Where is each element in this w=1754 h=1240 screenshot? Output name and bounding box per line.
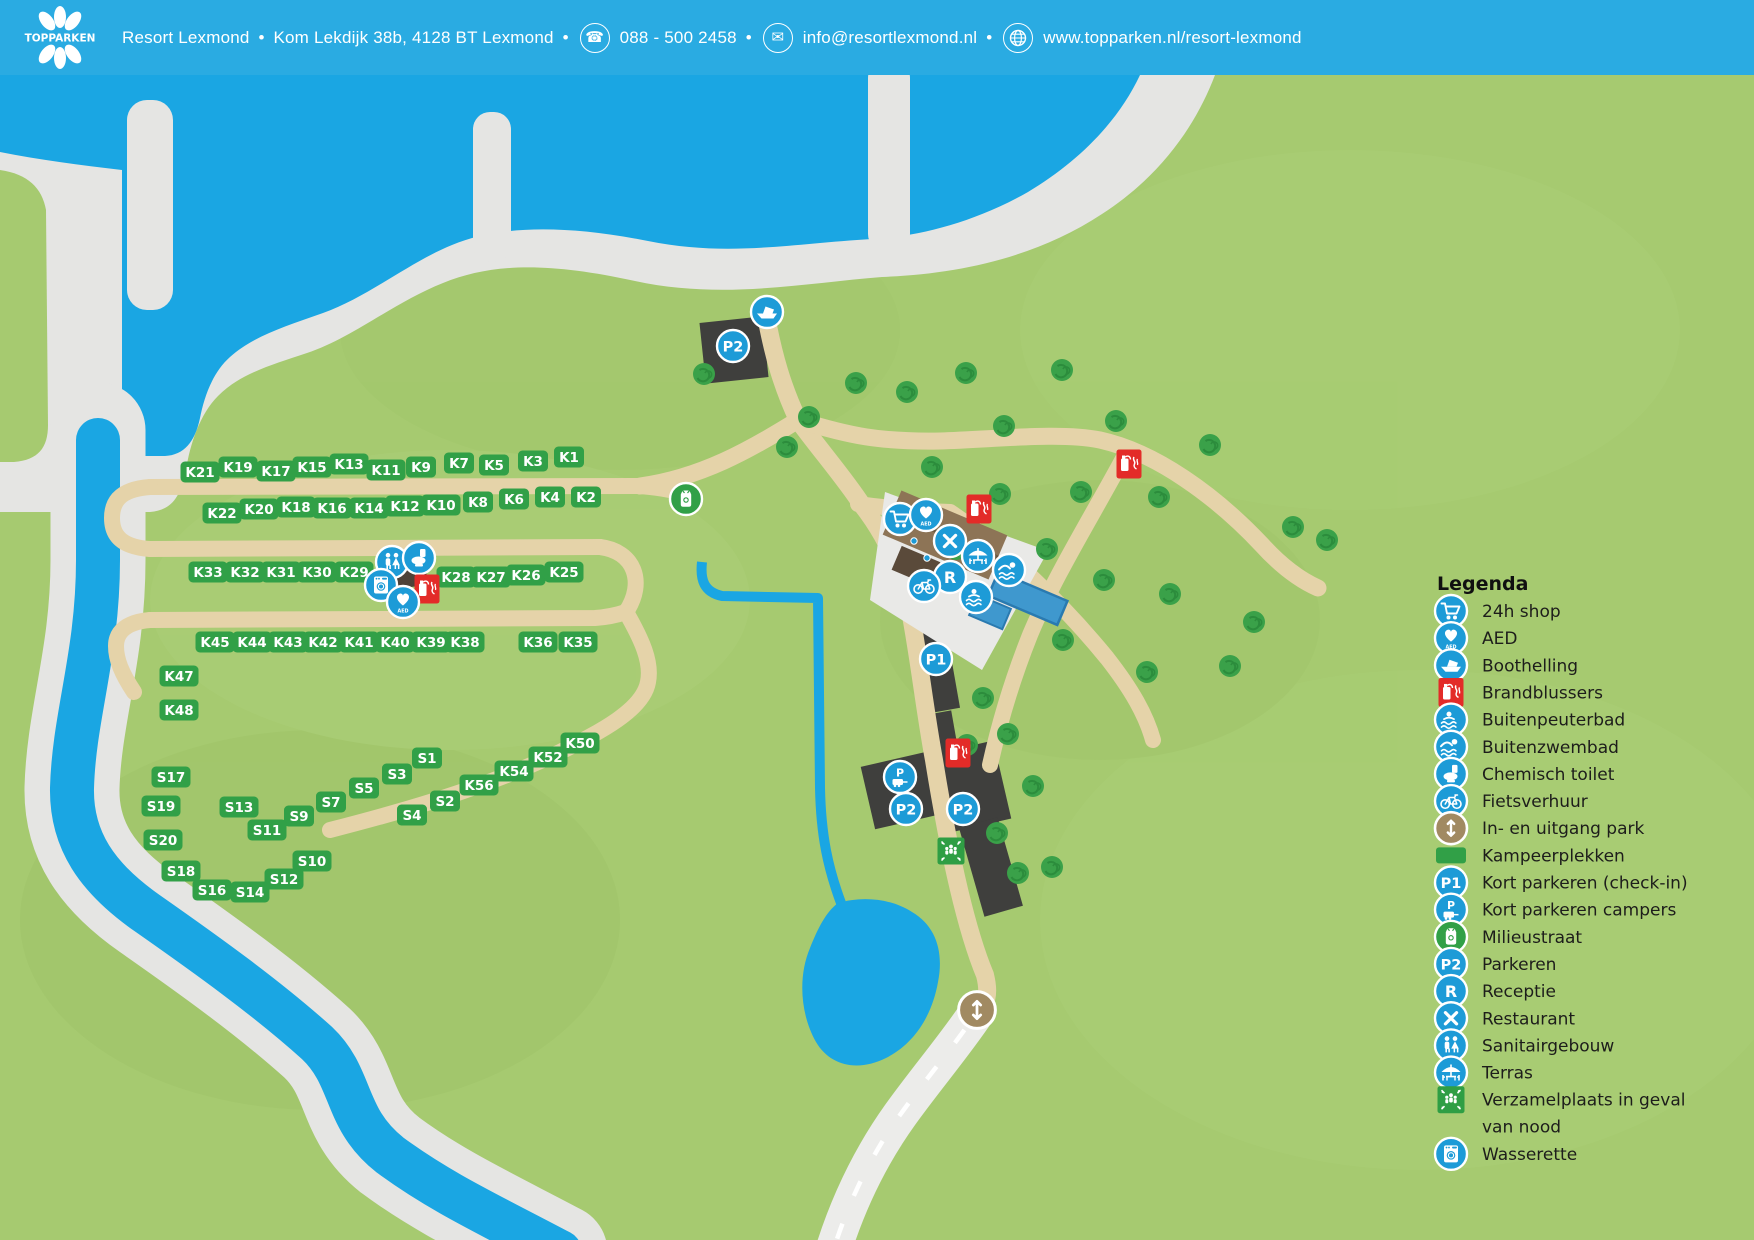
svg-text:Sanitairgebouw: Sanitairgebouw bbox=[1482, 1036, 1614, 1056]
svg-text:AED: AED bbox=[398, 609, 409, 615]
tree-icon bbox=[798, 406, 820, 428]
site-label-K27: K27 bbox=[472, 567, 511, 588]
svg-text:K32: K32 bbox=[230, 565, 259, 581]
svg-text:P2: P2 bbox=[896, 803, 917, 819]
site-label-S1: S1 bbox=[412, 748, 442, 769]
site-label-K52: K52 bbox=[529, 747, 568, 768]
svg-text:Boothelling: Boothelling bbox=[1482, 656, 1578, 676]
website-link[interactable]: www.topparken.nl/resort-lexmond bbox=[1043, 28, 1301, 48]
svg-text:S17: S17 bbox=[157, 770, 186, 786]
tree-icon bbox=[1282, 516, 1304, 538]
tree-icon bbox=[1148, 486, 1170, 508]
tree-icon bbox=[972, 687, 994, 709]
site-label-S4: S4 bbox=[397, 805, 427, 826]
svg-text:K15: K15 bbox=[297, 460, 326, 476]
svg-text:Kort parkeren campers: Kort parkeren campers bbox=[1482, 901, 1676, 921]
svg-text:R: R bbox=[944, 568, 956, 587]
site-label-S3: S3 bbox=[382, 764, 412, 785]
svg-text:P2: P2 bbox=[723, 340, 744, 356]
site-label-K38: K38 bbox=[446, 632, 485, 653]
svg-text:Brandblussers: Brandblussers bbox=[1482, 683, 1603, 703]
separator: • bbox=[563, 28, 569, 48]
tree-icon bbox=[1051, 359, 1073, 381]
site-label-K28: K28 bbox=[437, 567, 476, 588]
svg-text:S5: S5 bbox=[354, 781, 373, 797]
svg-text:K7: K7 bbox=[449, 456, 469, 472]
svg-text:Chemisch toilet: Chemisch toilet bbox=[1482, 765, 1615, 785]
site-label-K2: K2 bbox=[571, 487, 601, 508]
site-label-K20: K20 bbox=[240, 499, 279, 520]
svg-text:K16: K16 bbox=[317, 501, 346, 517]
svg-text:K28: K28 bbox=[441, 570, 470, 586]
site-label-K11: K11 bbox=[367, 460, 406, 481]
svg-text:K25: K25 bbox=[549, 565, 578, 581]
road-loop-c bbox=[150, 612, 626, 620]
map-icon-pcampers: P bbox=[884, 761, 916, 793]
site-label-S19: S19 bbox=[142, 796, 181, 817]
svg-text:K9: K9 bbox=[411, 460, 431, 476]
svg-text:K35: K35 bbox=[563, 635, 592, 651]
map-icon-p2: P2 bbox=[717, 330, 749, 362]
site-label-K48: K48 bbox=[160, 700, 199, 721]
svg-text:K14: K14 bbox=[354, 501, 383, 517]
site-label-S9: S9 bbox=[284, 806, 314, 827]
svg-text:K13: K13 bbox=[334, 457, 363, 473]
resort-address: Kom Lekdijk 38b, 4128 BT Lexmond bbox=[273, 28, 553, 48]
svg-text:K11: K11 bbox=[371, 463, 400, 479]
site-label-K42: K42 bbox=[304, 632, 343, 653]
svg-text:R: R bbox=[1445, 982, 1457, 1001]
phone-number[interactable]: 088 - 500 2458 bbox=[620, 28, 737, 48]
svg-text:K47: K47 bbox=[164, 669, 193, 685]
tree-icon bbox=[896, 381, 918, 403]
svg-text:Fietsverhuur: Fietsverhuur bbox=[1482, 792, 1588, 812]
site-label-K12: K12 bbox=[386, 496, 425, 517]
wasserette-icon bbox=[1435, 1138, 1467, 1170]
svg-text:Buitenzwembad: Buitenzwembad bbox=[1482, 738, 1619, 758]
verzamel-icon bbox=[1438, 1086, 1465, 1113]
tree-icon bbox=[1007, 862, 1029, 884]
svg-text:K38: K38 bbox=[450, 635, 479, 651]
site-label-K31: K31 bbox=[262, 562, 301, 583]
svg-text:S7: S7 bbox=[321, 795, 340, 811]
resort-map: K21K19K17K15K13K11K9K7K5K3K1K22K20K18K16… bbox=[0, 75, 1754, 1240]
site-label-S13: S13 bbox=[220, 797, 259, 818]
svg-text:Buitenpeuterbad: Buitenpeuterbad bbox=[1482, 711, 1625, 731]
map-icon-aed: AED bbox=[387, 586, 419, 618]
svg-text:K26: K26 bbox=[511, 568, 540, 584]
svg-text:Kort parkeren (check-in): Kort parkeren (check-in) bbox=[1482, 874, 1688, 894]
kampeerplekken-icon bbox=[1436, 847, 1466, 863]
tree-icon bbox=[955, 362, 977, 384]
map-icon-aed: AED bbox=[910, 499, 942, 531]
svg-text:K41: K41 bbox=[344, 635, 373, 651]
svg-text:S1: S1 bbox=[417, 751, 436, 767]
west-green-strip bbox=[0, 170, 48, 462]
tree-icon bbox=[1093, 569, 1115, 591]
map-icon-verzamel bbox=[938, 838, 965, 865]
site-label-K6: K6 bbox=[499, 489, 529, 510]
site-label-K44: K44 bbox=[233, 632, 272, 653]
site-label-S14: S14 bbox=[231, 882, 270, 903]
site-label-K26: K26 bbox=[507, 565, 546, 586]
resort-name: Resort Lexmond bbox=[122, 28, 250, 48]
svg-text:AED: AED bbox=[1482, 629, 1517, 649]
svg-text:P: P bbox=[1447, 899, 1455, 912]
site-label-K7: K7 bbox=[444, 453, 474, 474]
map-icon-zwembad bbox=[993, 554, 1025, 586]
tree-icon bbox=[845, 372, 867, 394]
tree-icon bbox=[693, 363, 715, 385]
separator: • bbox=[986, 28, 992, 48]
site-label-K9: K9 bbox=[406, 457, 436, 478]
road-loop-b bbox=[150, 547, 600, 549]
site-label-S12: S12 bbox=[265, 869, 304, 890]
svg-text:van nood: van nood bbox=[1482, 1118, 1561, 1138]
svg-text:K18: K18 bbox=[281, 500, 310, 516]
svg-text:K44: K44 bbox=[237, 635, 266, 651]
logo-text: TOPPARKEN bbox=[25, 32, 96, 44]
tree-icon bbox=[1022, 775, 1044, 797]
site-label-K43: K43 bbox=[269, 632, 308, 653]
site-label-K5: K5 bbox=[479, 455, 509, 476]
site-label-K47: K47 bbox=[160, 666, 199, 687]
resort-map-page: { "header": { "logo_text": "TOPPARKEN", … bbox=[0, 0, 1754, 1240]
map-icon-p2: P2 bbox=[890, 793, 922, 825]
tree-icon bbox=[1036, 538, 1058, 560]
building-marker bbox=[924, 555, 930, 561]
site-label-K25: K25 bbox=[545, 562, 584, 583]
site-label-K45: K45 bbox=[196, 632, 235, 653]
jetty-east bbox=[868, 75, 910, 252]
svg-text:K10: K10 bbox=[426, 498, 455, 514]
svg-text:Restaurant: Restaurant bbox=[1482, 1009, 1575, 1029]
svg-text:K40: K40 bbox=[380, 635, 409, 651]
svg-text:P1: P1 bbox=[926, 653, 947, 669]
site-label-S7: S7 bbox=[316, 792, 346, 813]
svg-text:Receptie: Receptie bbox=[1482, 982, 1556, 1002]
svg-text:K30: K30 bbox=[302, 565, 331, 581]
tree-icon bbox=[1052, 629, 1074, 651]
map-icon-boothelling bbox=[751, 296, 783, 328]
site-label-S20: S20 bbox=[144, 830, 183, 851]
svg-text:K8: K8 bbox=[468, 495, 488, 511]
svg-text:K6: K6 bbox=[504, 492, 524, 508]
svg-text:K48: K48 bbox=[164, 703, 193, 719]
site-label-S11: S11 bbox=[248, 820, 287, 841]
site-label-S16: S16 bbox=[193, 880, 232, 901]
map-icon-entrance bbox=[959, 992, 996, 1029]
phone-icon: ☎ bbox=[580, 23, 610, 53]
svg-text:S18: S18 bbox=[167, 864, 196, 880]
site-label-K14: K14 bbox=[350, 498, 389, 519]
svg-text:K52: K52 bbox=[533, 750, 562, 766]
map-icon-terras bbox=[962, 540, 994, 572]
tree-icon bbox=[1316, 529, 1338, 551]
tree-icon bbox=[1159, 583, 1181, 605]
svg-text:In- en uitgang park: In- en uitgang park bbox=[1482, 819, 1645, 839]
svg-text:K4: K4 bbox=[540, 490, 560, 506]
svg-text:K29: K29 bbox=[339, 565, 368, 581]
site-label-K10: K10 bbox=[422, 495, 461, 516]
tree-icon bbox=[1105, 410, 1127, 432]
svg-text:K21: K21 bbox=[185, 465, 214, 481]
tree-icon bbox=[776, 436, 798, 458]
site-label-K16: K16 bbox=[313, 498, 352, 519]
map-icon-brandblussers bbox=[967, 495, 992, 524]
site-label-K15: K15 bbox=[293, 457, 332, 478]
boothelling-icon bbox=[1435, 649, 1467, 681]
svg-text:S13: S13 bbox=[225, 800, 254, 816]
svg-text:S12: S12 bbox=[270, 872, 299, 888]
svg-text:Kampeerplekken: Kampeerplekken bbox=[1482, 846, 1625, 866]
map-icon-milieustraat bbox=[670, 483, 702, 515]
svg-text:S16: S16 bbox=[198, 883, 227, 899]
site-label-K39: K39 bbox=[412, 632, 451, 653]
site-label-K13: K13 bbox=[330, 454, 369, 475]
tree-icon bbox=[1219, 655, 1241, 677]
site-label-K36: K36 bbox=[519, 632, 558, 653]
svg-text:S20: S20 bbox=[149, 833, 178, 849]
tree-icon bbox=[989, 483, 1011, 505]
site-label-K54: K54 bbox=[495, 761, 534, 782]
svg-text:S4: S4 bbox=[402, 808, 421, 824]
svg-text:S10: S10 bbox=[298, 854, 327, 870]
tree-icon bbox=[1243, 611, 1265, 633]
map-icon-chemisch bbox=[403, 542, 435, 574]
svg-text:Milieustraat: Milieustraat bbox=[1482, 928, 1582, 948]
site-label-K8: K8 bbox=[463, 492, 493, 513]
svg-text:P2: P2 bbox=[953, 803, 974, 819]
svg-text:Wasserette: Wasserette bbox=[1482, 1145, 1577, 1165]
svg-text:P: P bbox=[896, 767, 904, 780]
globe-icon bbox=[1003, 23, 1033, 53]
svg-text:P1: P1 bbox=[1441, 876, 1462, 892]
map-icon-restaurant bbox=[934, 525, 966, 557]
site-label-S10: S10 bbox=[293, 851, 332, 872]
svg-text:K20: K20 bbox=[244, 502, 273, 518]
svg-text:S2: S2 bbox=[435, 794, 454, 810]
entrance-icon bbox=[1435, 812, 1467, 844]
site-label-K32: K32 bbox=[226, 562, 265, 583]
svg-text:Parkeren: Parkeren bbox=[1482, 955, 1556, 975]
svg-text:S19: S19 bbox=[147, 799, 176, 815]
tree-icon bbox=[1041, 856, 1063, 878]
site-label-K41: K41 bbox=[340, 632, 379, 653]
svg-text:Verzamelplaats in geval: Verzamelplaats in geval bbox=[1482, 1091, 1685, 1111]
tree-icon bbox=[921, 456, 943, 478]
tree-icon bbox=[997, 723, 1019, 745]
svg-text:K54: K54 bbox=[499, 764, 528, 780]
svg-text:S9: S9 bbox=[289, 809, 308, 825]
jetty-west bbox=[127, 100, 173, 310]
separator: • bbox=[259, 28, 265, 48]
svg-text:K56: K56 bbox=[464, 778, 493, 794]
site-label-S17: S17 bbox=[152, 767, 191, 788]
map-icon-p1: P1 bbox=[920, 643, 952, 675]
svg-text:P2: P2 bbox=[1441, 957, 1462, 973]
svg-text:K36: K36 bbox=[523, 635, 552, 651]
mail-icon: ✉ bbox=[763, 23, 793, 53]
site-label-K3: K3 bbox=[518, 451, 548, 472]
site-label-K30: K30 bbox=[298, 562, 337, 583]
header-bar: TOPPARKEN Resort Lexmond • Kom Lekdijk 3… bbox=[0, 0, 1754, 75]
building-marker bbox=[911, 538, 917, 544]
svg-text:K42: K42 bbox=[308, 635, 337, 651]
tree-icon bbox=[986, 822, 1008, 844]
site-label-K35: K35 bbox=[559, 632, 598, 653]
site-label-K40: K40 bbox=[376, 632, 415, 653]
svg-text:K12: K12 bbox=[390, 499, 419, 515]
svg-text:Terras: Terras bbox=[1481, 1064, 1533, 1084]
site-label-K4: K4 bbox=[535, 487, 565, 508]
legend-title: Legenda bbox=[1437, 573, 1528, 595]
svg-text:K5: K5 bbox=[484, 458, 504, 474]
svg-text:K1: K1 bbox=[559, 450, 579, 466]
svg-text:K50: K50 bbox=[565, 736, 594, 752]
svg-text:K2: K2 bbox=[576, 490, 596, 506]
svg-text:S14: S14 bbox=[236, 885, 265, 901]
svg-text:K43: K43 bbox=[273, 635, 302, 651]
site-label-S18: S18 bbox=[162, 861, 201, 882]
map-icon-brandblussers bbox=[1117, 450, 1142, 479]
email-link[interactable]: info@resortlexmond.nl bbox=[803, 28, 978, 48]
site-label-K56: K56 bbox=[460, 775, 499, 796]
svg-text:K22: K22 bbox=[207, 506, 236, 522]
svg-text:AED: AED bbox=[921, 522, 932, 528]
tree-icon bbox=[1199, 434, 1221, 456]
site-label-S2: S2 bbox=[430, 791, 460, 812]
jetty-middle bbox=[473, 112, 511, 262]
svg-text:K3: K3 bbox=[523, 454, 543, 470]
map-icon-peuterbad bbox=[960, 581, 992, 613]
svg-text:K39: K39 bbox=[416, 635, 445, 651]
site-label-K1: K1 bbox=[554, 447, 584, 468]
svg-text:K27: K27 bbox=[476, 570, 505, 586]
map-icon-p2: P2 bbox=[947, 793, 979, 825]
terras-icon bbox=[1435, 1057, 1467, 1089]
site-label-K21: K21 bbox=[181, 462, 220, 483]
tree-icon bbox=[993, 415, 1015, 437]
site-label-K18: K18 bbox=[277, 497, 316, 518]
svg-text:S3: S3 bbox=[387, 767, 406, 783]
tree-icon bbox=[1136, 661, 1158, 683]
svg-text:24h shop: 24h shop bbox=[1482, 602, 1561, 622]
svg-text:S11: S11 bbox=[253, 823, 282, 839]
svg-text:K31: K31 bbox=[266, 565, 295, 581]
site-label-S5: S5 bbox=[349, 778, 379, 799]
separator: • bbox=[746, 28, 752, 48]
map-icon-brandblussers bbox=[946, 739, 971, 768]
svg-text:K17: K17 bbox=[261, 464, 290, 480]
svg-text:K33: K33 bbox=[193, 565, 222, 581]
site-label-K33: K33 bbox=[189, 562, 228, 583]
tree-icon bbox=[1070, 481, 1092, 503]
site-label-K19: K19 bbox=[219, 457, 258, 478]
map-icon-fiets bbox=[908, 570, 940, 602]
svg-text:K45: K45 bbox=[200, 635, 229, 651]
topparken-logo: TOPPARKEN bbox=[18, 6, 102, 70]
site-label-K17: K17 bbox=[257, 461, 296, 482]
svg-text:K19: K19 bbox=[223, 460, 252, 476]
site-label-K22: K22 bbox=[203, 503, 242, 524]
